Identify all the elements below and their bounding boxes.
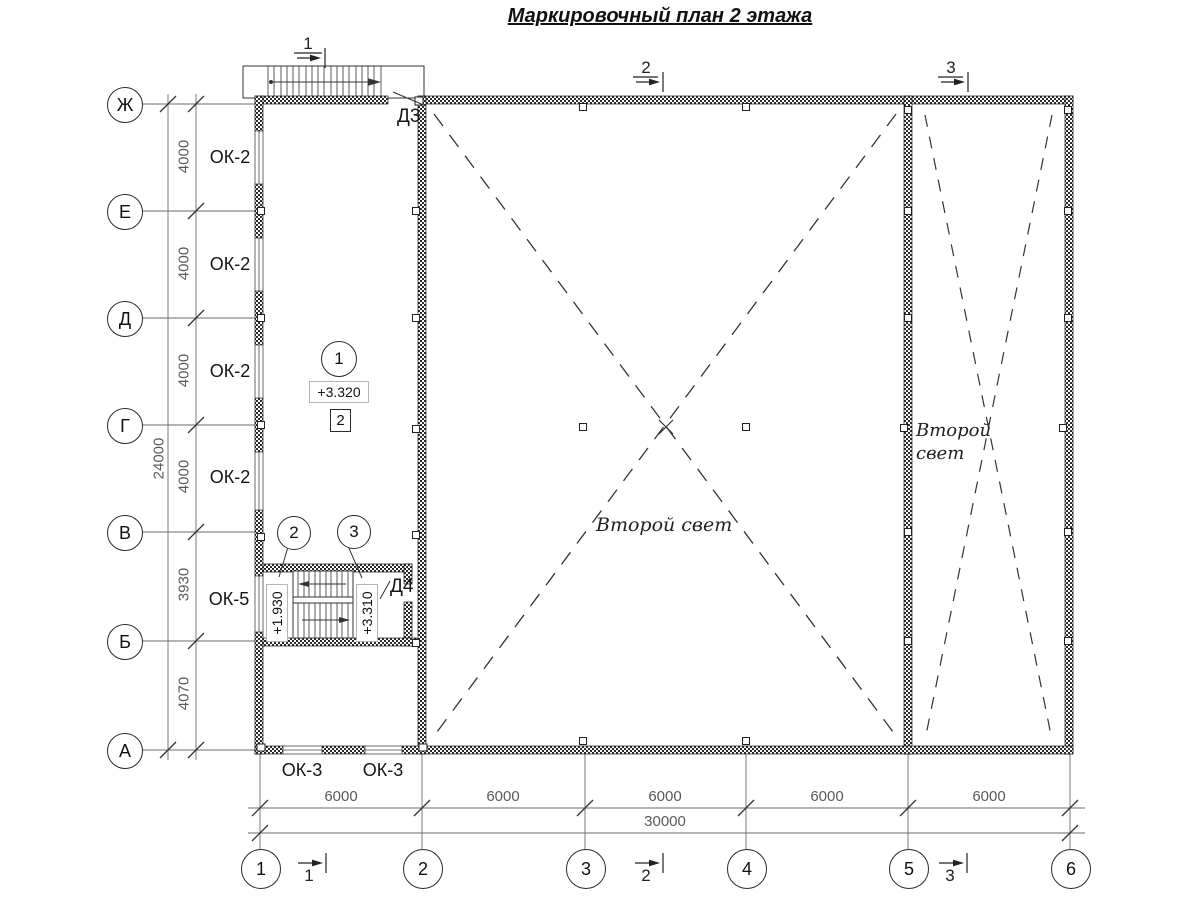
zone-label-right-line2: свет [916, 443, 996, 464]
axis-row-g: Г [107, 408, 143, 444]
dimension-ticks [160, 96, 1078, 841]
page-title: Маркировочный план 2 этажа [400, 5, 920, 28]
window-label-ok2-4: ОК-2 [198, 467, 262, 488]
floor-plan-sheet: Маркировочный план 2 этажа Ж Е Д Г В Б А… [0, 0, 1200, 900]
axis-row-v: В [107, 515, 143, 551]
dim-left-total: 24000 [151, 419, 168, 499]
axis-col-4: 4 [727, 849, 767, 889]
stair-mark-circle-3: 3 [337, 515, 371, 549]
door-label-d3: Д3 [397, 106, 420, 128]
section-mark-2-bottom: 2 [634, 866, 658, 886]
axis-col-1: 1 [241, 849, 281, 889]
stair-mark-circle-2: 2 [277, 516, 311, 550]
section-mark-3-bottom: 3 [938, 866, 962, 886]
section-mark-2-top: 2 [634, 58, 658, 78]
dim-bottom-2: 6000 [473, 788, 533, 805]
dim-left-3: 4000 [176, 341, 193, 401]
axis-row-a: А [107, 733, 143, 769]
axis-row-d: Д [107, 301, 143, 337]
zone-label-hall: Второй свет [596, 514, 726, 536]
dim-left-6: 4070 [176, 664, 193, 724]
section-mark-1-bottom: 1 [297, 866, 321, 886]
window-label-ok5: ОК-5 [197, 589, 261, 610]
axis-col-5: 5 [889, 849, 929, 889]
axis-row-b: Б [107, 624, 143, 660]
stair-elevation-landing: +1.930 [266, 584, 288, 642]
door-label-d4: Д4 [390, 576, 413, 598]
dim-bottom-1: 6000 [311, 788, 371, 805]
section-mark-3-top: 3 [939, 58, 963, 78]
dim-bottom-3: 6000 [635, 788, 695, 805]
room-number-circle: 1 [321, 341, 357, 377]
zone-label-right-line1: Второй [916, 420, 996, 441]
axis-col-6: 6 [1051, 849, 1091, 889]
cross-center-mark [659, 420, 673, 434]
dim-left-2: 4000 [176, 234, 193, 294]
windows [255, 131, 402, 754]
axis-row-zh: Ж [107, 87, 143, 123]
dim-bottom-4: 6000 [797, 788, 857, 805]
internal-stair [293, 571, 353, 638]
window-label-ok3-1: ОК-3 [270, 760, 334, 781]
axis-row-e: Е [107, 194, 143, 230]
room-type-box: 2 [330, 409, 351, 432]
section-mark-1-top: 1 [296, 34, 320, 54]
window-label-ok2-1: ОК-2 [198, 147, 262, 168]
dashed-cross-hall [434, 114, 896, 736]
dim-left-5: 3930 [176, 555, 193, 615]
dim-bottom-total: 30000 [625, 813, 705, 830]
window-label-ok3-2: ОК-3 [351, 760, 415, 781]
dim-left-1: 4000 [176, 127, 193, 187]
stair-elevation-floor: +3.310 [356, 584, 378, 642]
axis-col-3: 3 [566, 849, 606, 889]
axis-col-2: 2 [403, 849, 443, 889]
room-elevation-mark: +3.320 [309, 381, 369, 403]
window-label-ok2-3: ОК-2 [198, 361, 262, 382]
dim-left-4: 4000 [176, 447, 193, 507]
axis-lines [140, 104, 1070, 849]
window-label-ok2-2: ОК-2 [198, 254, 262, 275]
dim-bottom-5: 6000 [959, 788, 1019, 805]
